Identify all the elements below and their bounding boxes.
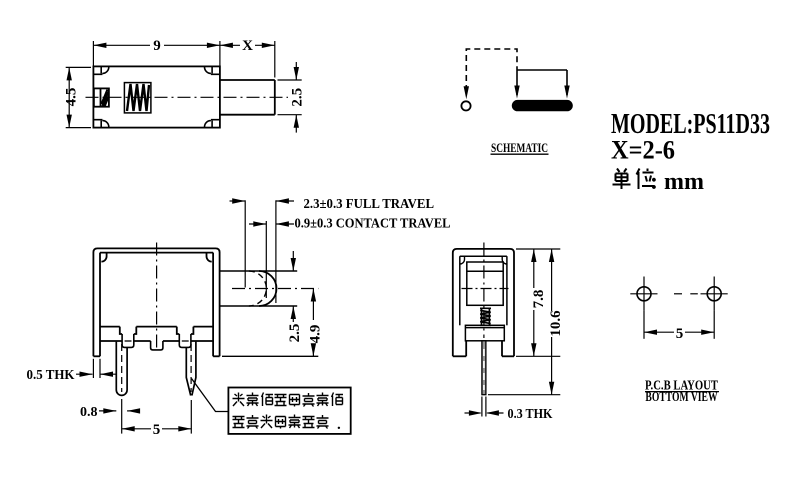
svg-text:BOTTOM VIEW: BOTTOM VIEW <box>645 389 718 404</box>
svg-text:0.5 THK: 0.5 THK <box>27 368 75 383</box>
svg-text:2.3±0.3 FULL TRAVEL: 2.3±0.3 FULL TRAVEL <box>304 197 435 212</box>
svg-text:.: . <box>337 417 341 433</box>
svg-text:5: 5 <box>153 422 161 438</box>
svg-text:0.3 THK: 0.3 THK <box>508 407 553 422</box>
svg-text:7.8: 7.8 <box>531 290 547 309</box>
svg-text:SCHEMATIC: SCHEMATIC <box>491 140 548 155</box>
svg-text:X: X <box>242 38 253 54</box>
svg-text:4.9: 4.9 <box>308 325 324 344</box>
svg-text:5: 5 <box>676 326 684 342</box>
svg-text:: mm: : mm <box>650 169 704 195</box>
svg-text:10.6: 10.6 <box>548 310 564 337</box>
svg-text:2.5: 2.5 <box>287 324 303 343</box>
svg-text:4.5: 4.5 <box>63 88 79 107</box>
svg-text:2.5: 2.5 <box>290 88 306 107</box>
svg-text:9: 9 <box>153 38 161 54</box>
svg-text:X=2-6: X=2-6 <box>611 136 675 165</box>
svg-text:0.9±0.3 CONTACT TRAVEL: 0.9±0.3 CONTACT TRAVEL <box>295 217 451 232</box>
svg-text:0.8: 0.8 <box>80 405 98 420</box>
